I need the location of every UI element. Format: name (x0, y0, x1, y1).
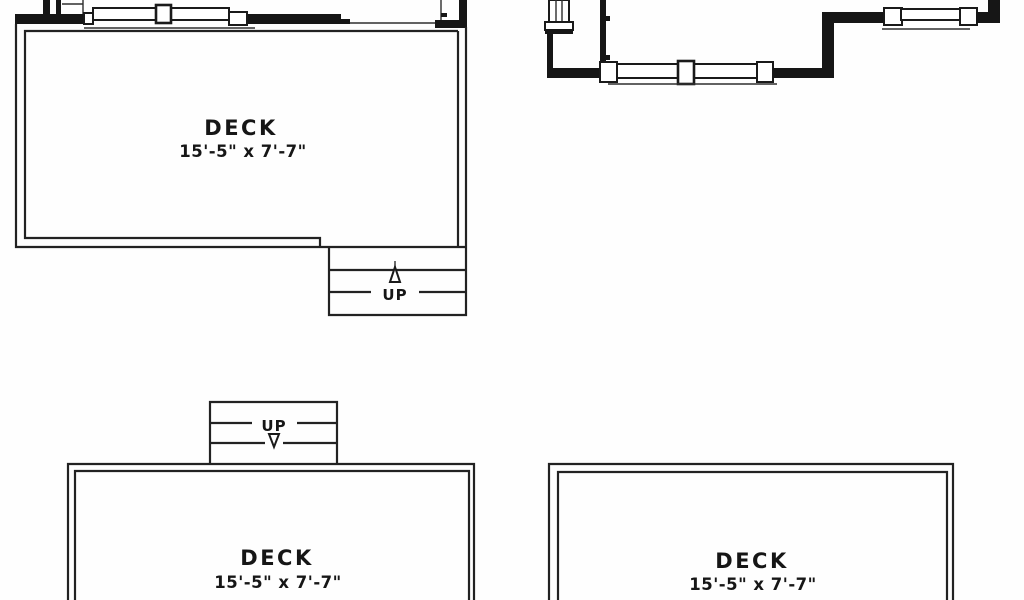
lower-right-deck-plan: DECK 15'-5" x 7'-7" (549, 464, 953, 600)
exterior-wall (976, 0, 1000, 23)
floor-plan-drawing: UP DECK 15'-5" x 7'-7" (0, 0, 1024, 600)
deck-label: DECK (240, 546, 313, 570)
window-symbol (545, 0, 573, 34)
deck-dimensions: 15'-5" x 7'-7" (179, 142, 307, 161)
window-mullion (678, 61, 694, 84)
stairs-up-label: UP (261, 417, 286, 435)
stairs-up-label: UP (382, 286, 407, 304)
deck-label: DECK (204, 116, 277, 140)
down-arrow-icon (269, 434, 279, 447)
window-symbol (84, 5, 255, 28)
lower-left-deck-plan: UP DECK 15'-5" x 7'-7" (68, 402, 474, 600)
window-symbol (600, 61, 777, 84)
window-symbol (882, 8, 977, 29)
upper-deck-plan: UP DECK 15'-5" x 7'-7" (15, 0, 467, 315)
stairs: UP (329, 261, 466, 304)
upper-wall-plan (545, 0, 1000, 84)
deck-dimensions: 15'-5" x 7'-7" (214, 573, 342, 592)
floor-plan-canvas: UP DECK 15'-5" x 7'-7" (0, 0, 1024, 600)
deck-label: DECK (715, 549, 788, 573)
window-mullion (156, 5, 171, 23)
deck-dimensions: 15'-5" x 7'-7" (689, 575, 817, 594)
stairs: UP (210, 402, 337, 465)
deck-outline (16, 24, 466, 315)
exterior-wall (773, 12, 886, 78)
